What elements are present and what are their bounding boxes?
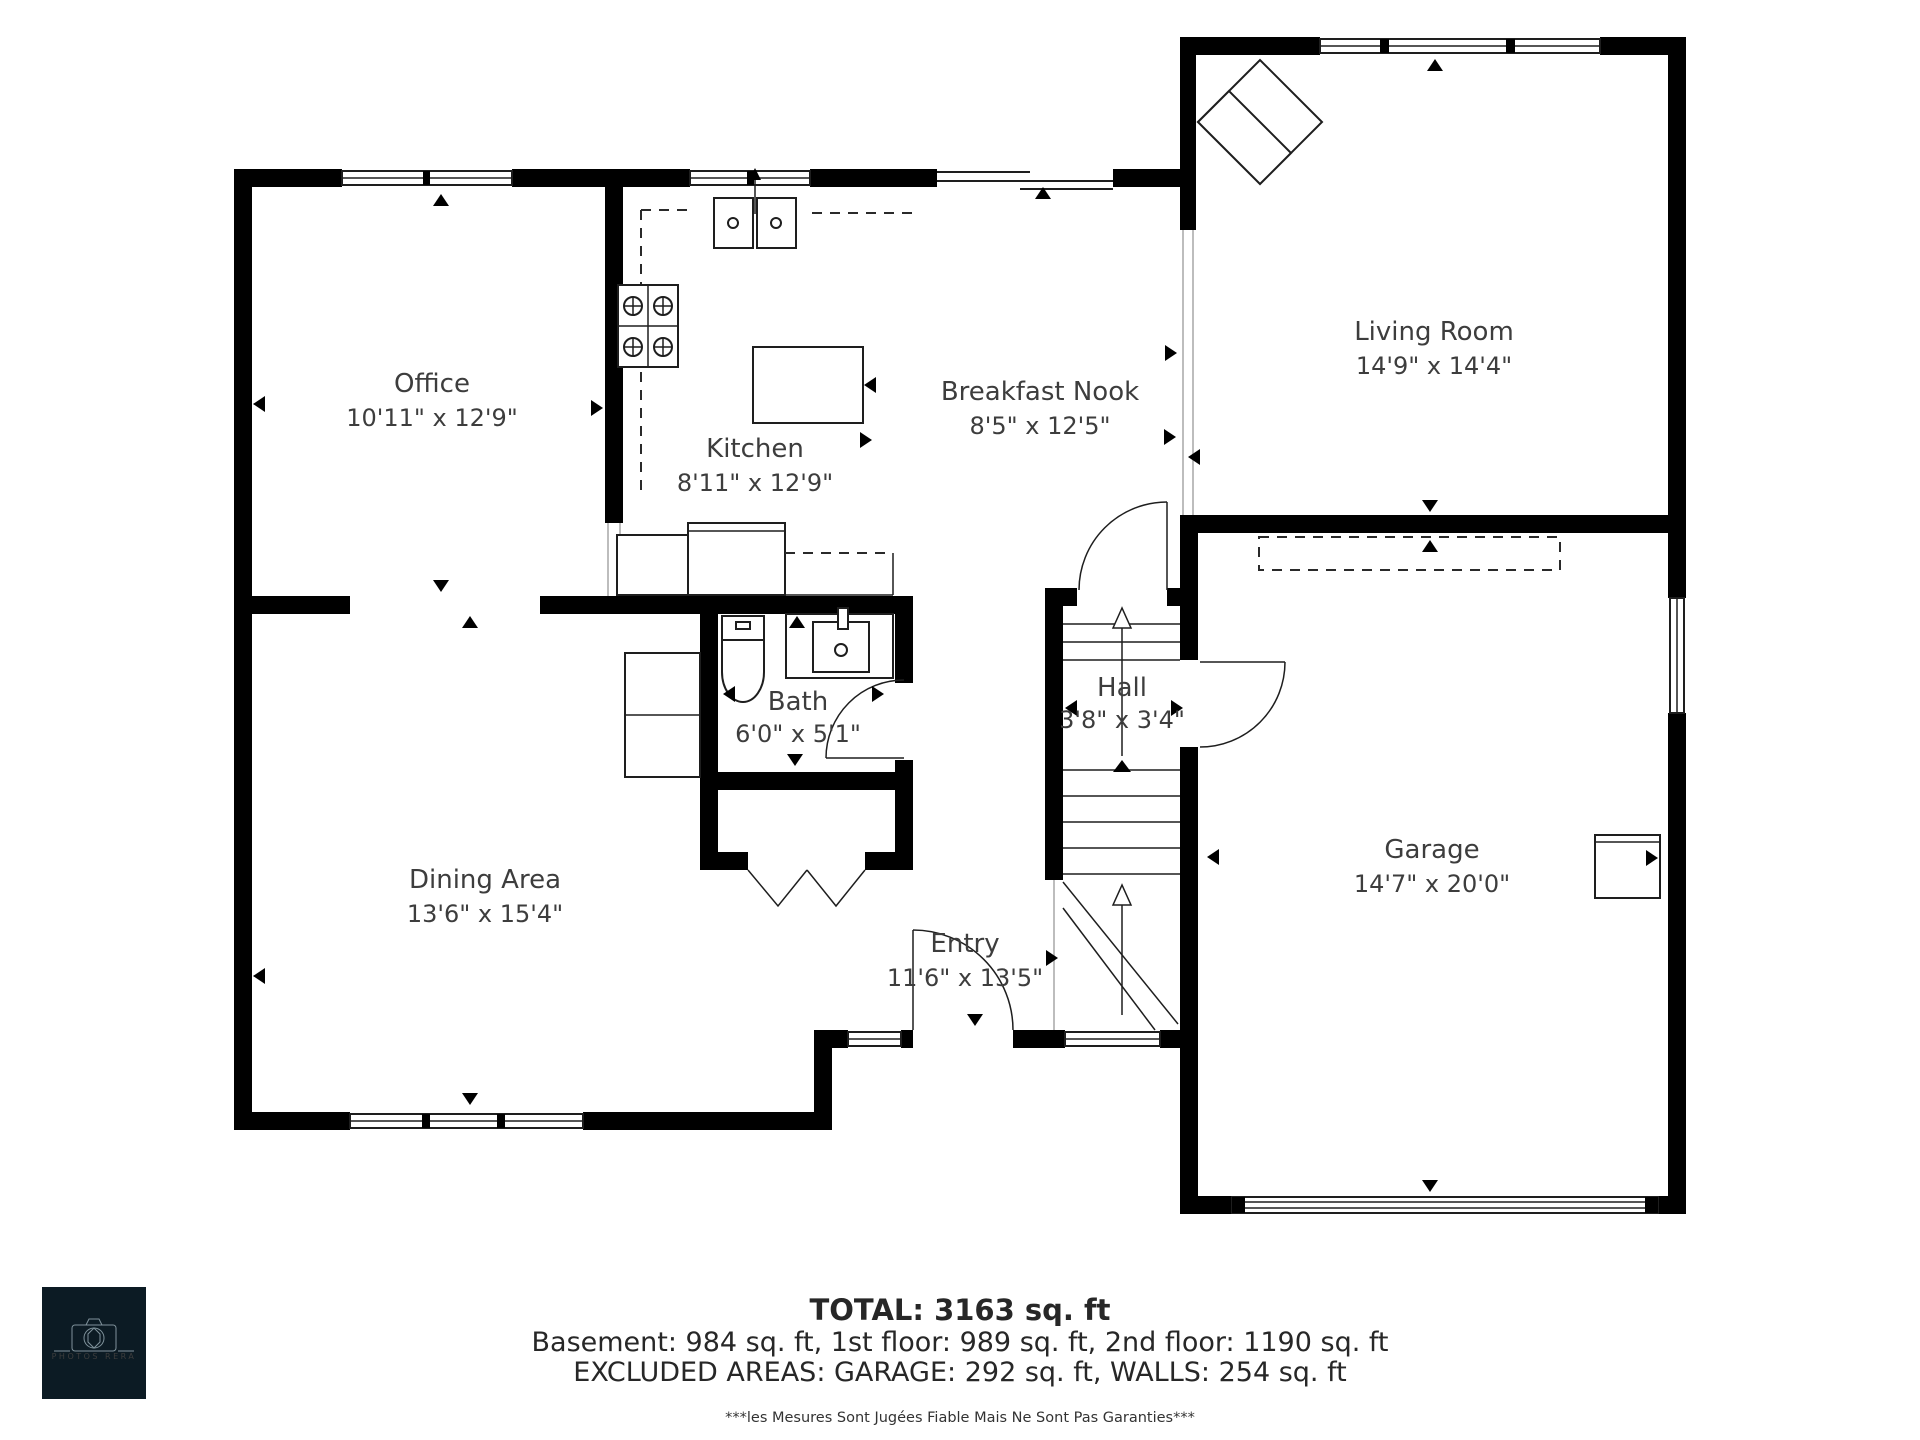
summary-footer: TOTAL: 3163 sq. ft Basement: 984 sq. ft,… (0, 1282, 1920, 1426)
room-label-garage: Garage 14'7" x 20'0" (1354, 835, 1510, 898)
room-label-breakfast-nook: Breakfast Nook 8'5" x 12'5" (941, 377, 1139, 440)
stairs (1063, 608, 1180, 1030)
dining-cabinet (625, 653, 700, 777)
marker-up-icon (433, 194, 449, 206)
doors (748, 502, 1285, 1030)
total-area-text: TOTAL: 3163 sq. ft (0, 1296, 1920, 1325)
marker-right-icon (1164, 429, 1176, 445)
marker-right-icon (872, 686, 884, 702)
marker-right-icon (860, 432, 872, 448)
photographer-logo: PHOTOS RERA (42, 1287, 146, 1399)
room-label-office: Office 10'11" x 12'9" (346, 369, 518, 432)
camera-logo-icon: PHOTOS RERA (42, 1287, 146, 1399)
room-dims: 13'6" x 15'4" (407, 900, 563, 928)
marker-right-icon (1046, 950, 1058, 966)
room-dims: 14'9" x 14'4" (1356, 352, 1512, 380)
room-dims: 8'5" x 12'5" (969, 412, 1110, 440)
marker-down-icon (1422, 1180, 1438, 1192)
window (1670, 598, 1684, 713)
garage-door-swing (1200, 662, 1285, 747)
hall-door-swing (1079, 502, 1167, 590)
marker-down-icon (1422, 500, 1438, 512)
marker-left-icon (1207, 849, 1219, 865)
room-name: Entry (930, 929, 999, 959)
window (848, 1032, 901, 1046)
room-label-entry: Entry 11'6" x 13'5" (887, 929, 1043, 992)
fireplace-icon (1198, 60, 1322, 184)
room-name: Office (394, 369, 470, 399)
window (1320, 39, 1600, 53)
floor-plan: Office 10'11" x 12'9" Kitchen 8'11" x 12… (0, 0, 1920, 1440)
window (350, 1114, 583, 1128)
marker-down-icon (787, 754, 803, 766)
window (1065, 1032, 1160, 1046)
room-dims: 14'7" x 20'0" (1354, 870, 1510, 898)
marker-left-icon (253, 968, 265, 984)
room-dims: 6'0" x 5'1" (735, 720, 861, 748)
garage-storage-dashed (1259, 537, 1560, 570)
floor-plan-page: Office 10'11" x 12'9" Kitchen 8'11" x 12… (0, 0, 1920, 1440)
logo-text: PHOTOS RERA (52, 1352, 137, 1361)
room-dims: 11'6" x 13'5" (887, 964, 1043, 992)
marker-right-icon (1165, 345, 1177, 361)
marker-up-icon (1427, 59, 1443, 71)
room-dims: 8'11" x 12'9" (677, 469, 833, 497)
kitchen-cabinet (617, 535, 688, 595)
bifold-closet-doors (748, 870, 865, 906)
excluded-areas-text: EXCLUDED AREAS: GARAGE: 292 sq. ft, WALL… (0, 1359, 1920, 1387)
room-name: Living Room (1354, 317, 1514, 347)
bathroom-sink-icon (786, 608, 893, 678)
marker-down-icon (462, 1093, 478, 1105)
marker-down-icon (433, 580, 449, 592)
room-name: Garage (1384, 835, 1479, 865)
marker-right-icon (591, 400, 603, 416)
walls (234, 37, 1686, 1214)
marker-left-icon (253, 396, 265, 412)
room-name: Hall (1097, 673, 1147, 703)
kitchen-cabinet-dashed (785, 553, 893, 595)
stair-cut-line (1063, 908, 1155, 1030)
room-dims: 10'11" x 12'9" (346, 404, 518, 432)
room-label-dining-area: Dining Area 13'6" x 15'4" (407, 865, 563, 928)
room-name: Bath (768, 687, 828, 717)
disclaimer-text: ***les Mesures Sont Jugées Fiable Mais N… (0, 1410, 1920, 1426)
stove-icon (618, 285, 678, 367)
room-label-kitchen: Kitchen 8'11" x 12'9" (677, 434, 833, 497)
window (342, 171, 512, 185)
kitchen-island (753, 347, 863, 423)
direction-markers (253, 59, 1658, 1192)
marker-up-icon (462, 616, 478, 628)
room-name: Dining Area (409, 865, 561, 895)
floor-areas-text: Basement: 984 sq. ft, 1st floor: 989 sq.… (0, 1329, 1920, 1357)
room-name: Breakfast Nook (941, 377, 1139, 407)
room-label-living-room: Living Room 14'9" x 14'4" (1354, 317, 1514, 380)
marker-up-icon (1422, 540, 1438, 552)
room-dims: 3'8" x 3'4" (1059, 706, 1185, 734)
dishwasher-icon (688, 523, 785, 595)
water-heater-icon (1595, 835, 1660, 898)
toilet-icon (722, 616, 764, 702)
marker-down-icon (967, 1014, 983, 1026)
room-name: Kitchen (706, 434, 804, 464)
garage-door (1232, 1197, 1658, 1213)
marker-left-icon (864, 377, 876, 393)
